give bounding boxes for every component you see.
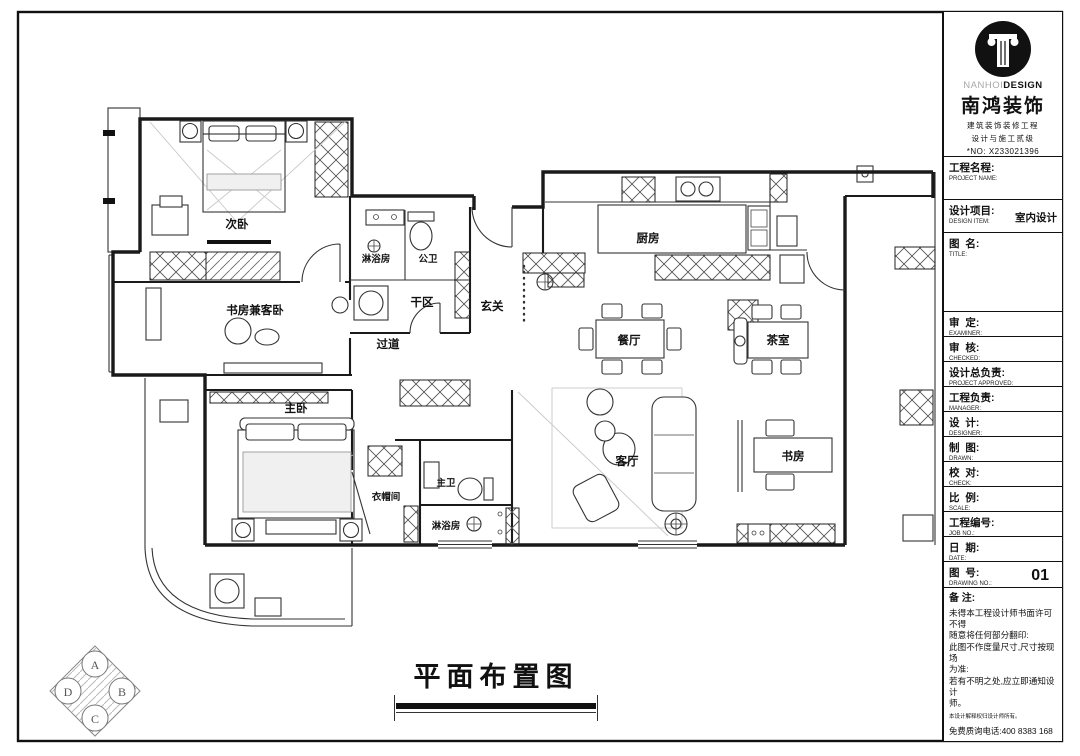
elevation-letter-c: C [91,712,99,726]
field-label-zh: 设计项目: [949,203,995,218]
room-label-shower-top: 淋浴房 [362,253,391,265]
field-date: 日 期:DATE: [944,536,1062,561]
underline-bar-thin [396,712,596,713]
elevation-letter-a: A [91,658,100,672]
remarks-section: 备 注: 未得本工程设计师书面许可不得 随意将任何部分翻印: 此图不作度量尺寸,… [944,587,1062,741]
room-label-study-guest: 书房兼客卧 [226,303,284,317]
remark-line: 随意将任何部分翻印: [949,630,1057,641]
elevation-letter-d: D [64,685,73,699]
field-drawing-no: 图 号:DRAWING NO.: 01 [944,561,1062,587]
license-number: *NO: X233021396 [967,147,1039,156]
design-item-value: 室内设计 [1015,210,1057,225]
drawing-title: 平面布置图 [394,655,598,721]
field-label-zh: 审 核: [949,340,980,355]
drawing-title-text: 平面布置图 [394,655,598,694]
brand-latin: NANHOIDESIGN [963,80,1042,91]
field-job-no: 工程编号:JOB NO.: [944,511,1062,536]
field-check: 校 对:CHECK: [944,461,1062,486]
field-project-name: 工程名程:PROJECT NAME: [944,156,1062,199]
field-label-zh: 图 名: [949,236,979,251]
room-label-master-bedroom: 主卧 [285,401,308,415]
room-label-second-bedroom: 次卧 [226,217,249,231]
title-block: NANHOIDESIGN 南鸿装饰 建筑装饰装修工程 设计与施工贰级 *NO: … [942,12,1062,741]
remarks-title: 备 注: [949,592,1057,605]
field-label-zh: 工程负责: [949,390,995,405]
remark-line: 若有不明之处,应立即通知设计 [949,676,1057,699]
field-drawn: 制 图:DRAWN: [944,436,1062,461]
room-label-living: 客厅 [615,454,639,468]
field-design-item: 设计项目:DESIGN ITEM: 室内设计 [944,199,1062,232]
room-label-shower-bottom: 淋浴房 [432,520,461,532]
field-label-zh: 日 期: [949,540,979,555]
company-logo-icon [975,21,1031,77]
room-label-tea-room: 茶室 [766,333,790,347]
underline-bar-thick [396,703,596,709]
room-label-dining: 餐厅 [617,333,641,347]
field-label-zh: 制 图: [949,440,979,455]
brand-latin-light: NANHOI [963,80,1003,91]
company-subtitle-1: 建筑装饰装修工程 [967,120,1039,131]
field-manager: 工程负责:MANAGER: [944,386,1062,411]
field-label-zh: 审 定: [949,315,982,330]
field-label-zh: 比 例: [949,490,979,505]
field-label-zh: 工程名程: [949,160,998,175]
remark-line: 为准: [949,664,1057,675]
field-label-zh: 校 对: [949,465,979,480]
bath-top-fixtures [332,210,553,320]
furniture [146,121,845,543]
column-icon [983,29,1023,69]
field-label-zh: 设计总负责: [949,365,1013,380]
field-label-en: DESIGN ITEM: [949,219,995,225]
company-logo-section: NANHOIDESIGN 南鸿装饰 建筑装饰装修工程 设计与施工贰级 *NO: … [944,12,1062,156]
room-label-master-bath: 主卫 [436,477,456,489]
field-designer: 设 计:DESIGNER: [944,411,1062,436]
field-label-en: TITLE: [949,252,979,258]
field-label-en: PROJECT NAME: [949,176,998,182]
room-label-study: 书房 [782,449,805,463]
floor-plan-canvas: 次卧 书房兼客卧 淋浴房 公卫 干区 玄关 过道 厨房 餐厅 茶室 客厅 书房 … [0,0,1080,756]
underline-tick-right [597,695,598,721]
drawing-title-underline [394,699,598,721]
field-scale: 比 例:SCALE: [944,486,1062,511]
field-examiner: 审 定:EXAMINER: [944,311,1062,336]
hotline-number: 免费质询电话:400 8383 168 [949,726,1057,737]
company-name: 南鸿装饰 [961,91,1045,118]
room-label-public-bath: 公卫 [418,254,438,265]
room-label-entry: 玄关 [481,299,504,313]
brand-latin-bold: DESIGN [1003,80,1042,91]
field-label-zh: 工程编号: [949,515,995,530]
field-label-zh: 设 计: [949,415,982,430]
field-project-approved: 设计总负责:PROJECT APPROVED: [944,361,1062,386]
remark-line: 未得本工程设计师书面许可不得 [949,608,1057,631]
room-label-closet: 衣帽间 [372,491,401,503]
elevation-marker: A B C D [50,646,140,736]
remark-line: 师。 [949,698,1057,709]
room-label-dry-area: 干区 [411,296,434,309]
room-label-kitchen: 厨房 [637,231,660,245]
drawing-no-value: 01 [1031,567,1049,585]
room-label-hallway: 过道 [377,337,400,351]
remark-fine-print: 本设计解释权归设计师所有。 [949,714,1057,721]
study-guest-furniture [146,288,322,373]
remark-line: 此图不作度量尺寸,尺寸按现场 [949,642,1057,665]
field-checked: 审 核:CHECKED: [944,336,1062,361]
bed-master-bedroom [232,418,362,541]
field-label-zh: 图 号: [949,565,992,580]
drawing-sheet: 次卧 书房兼客卧 淋浴房 公卫 干区 玄关 过道 厨房 餐厅 茶室 客厅 书房 … [0,0,1080,756]
field-title: 图 名:TITLE: [944,232,1062,312]
elevation-letter-b: B [118,685,126,699]
company-subtitle-2: 设计与施工贰级 [972,133,1035,144]
